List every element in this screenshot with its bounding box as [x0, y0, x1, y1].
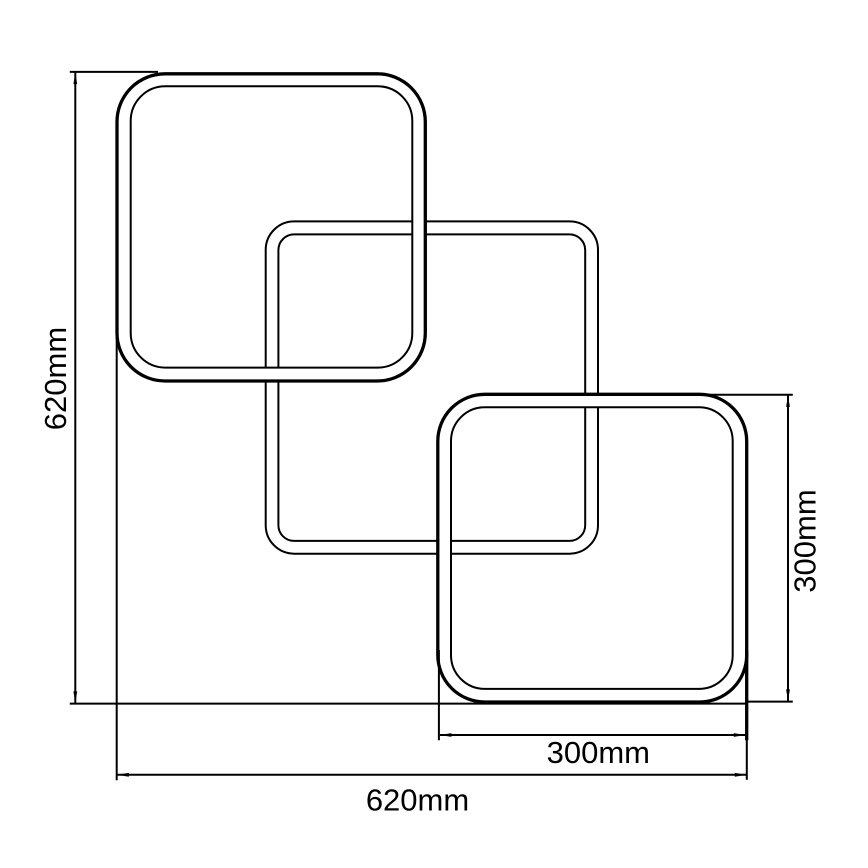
svg-text:620mm: 620mm — [366, 783, 469, 818]
svg-text:620mm: 620mm — [38, 327, 73, 430]
svg-text:300mm: 300mm — [787, 489, 822, 592]
svg-text:300mm: 300mm — [547, 735, 650, 770]
